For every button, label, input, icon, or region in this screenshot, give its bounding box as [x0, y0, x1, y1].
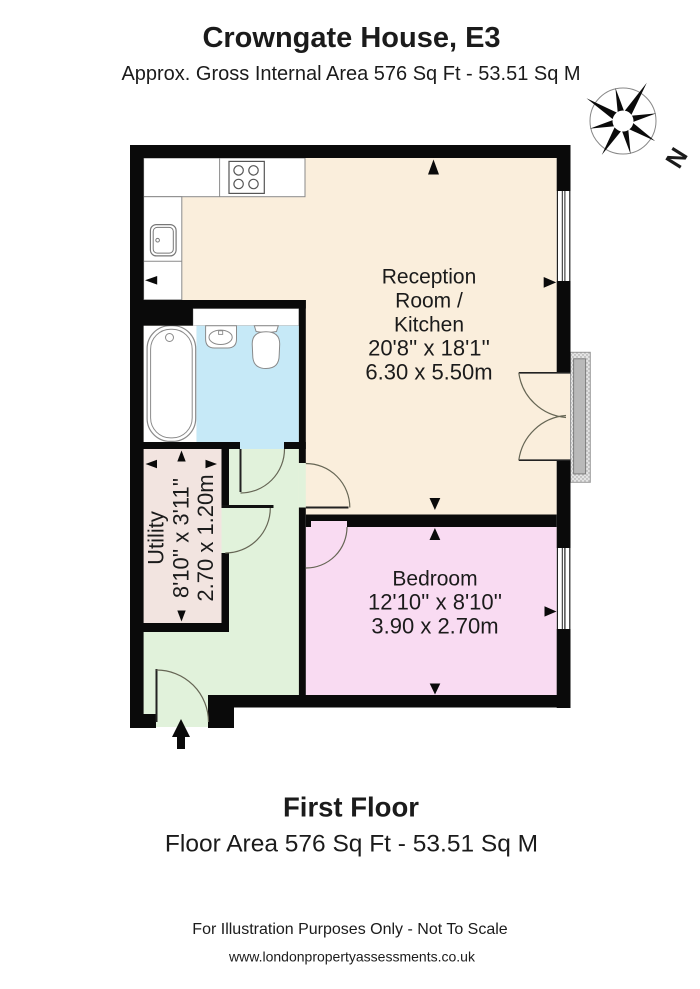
- svg-text:For Illustration Purposes Only: For Illustration Purposes Only - Not To …: [192, 921, 507, 938]
- svg-text:Room /: Room /: [395, 290, 463, 313]
- svg-text:8'10'' x 3'11'': 8'10'' x 3'11'': [169, 478, 194, 598]
- svg-text:12'10'' x 8'10'': 12'10'' x 8'10'': [368, 590, 502, 615]
- svg-text:Utility: Utility: [144, 511, 169, 565]
- svg-text:Crowngate House, E3: Crowngate House, E3: [202, 22, 500, 54]
- svg-text:www.londonpropertyassessments.: www.londonpropertyassessments.co.uk: [228, 949, 476, 965]
- svg-text:Bedroom: Bedroom: [392, 568, 477, 591]
- svg-text:Reception: Reception: [382, 266, 477, 289]
- svg-text:6.30 x 5.50m: 6.30 x 5.50m: [365, 360, 492, 385]
- svg-text:3.90 x 2.70m: 3.90 x 2.70m: [371, 614, 498, 639]
- svg-text:Floor Area 576 Sq Ft - 53.51 S: Floor Area 576 Sq Ft - 53.51 Sq M: [165, 831, 538, 858]
- svg-text:Kitchen: Kitchen: [394, 314, 464, 337]
- svg-text:Approx. Gross Internal Area 57: Approx. Gross Internal Area 576 Sq Ft - …: [121, 63, 580, 85]
- svg-text:First Floor: First Floor: [283, 792, 419, 823]
- svg-text:20'8'' x 18'1'': 20'8'' x 18'1'': [368, 336, 490, 361]
- svg-text:2.70 x 1.20m: 2.70 x 1.20m: [193, 474, 218, 601]
